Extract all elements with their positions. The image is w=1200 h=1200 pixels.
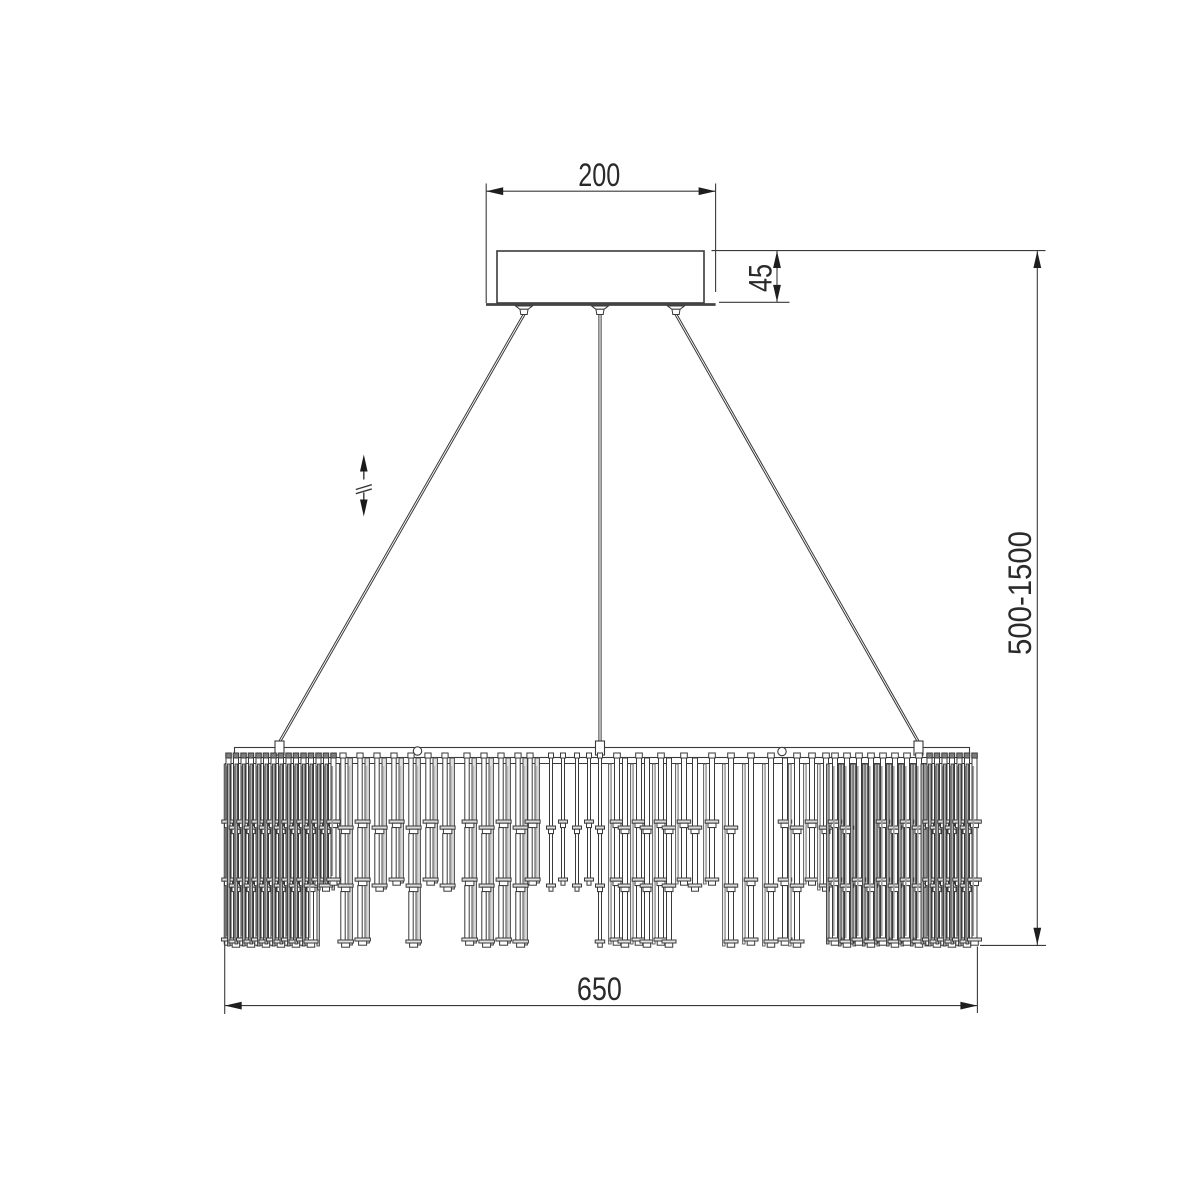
svg-text:200: 200 (578, 157, 620, 193)
svg-text:500-1500: 500-1500 (1002, 531, 1038, 655)
svg-text:650: 650 (577, 971, 622, 1007)
svg-text:45: 45 (743, 264, 779, 292)
